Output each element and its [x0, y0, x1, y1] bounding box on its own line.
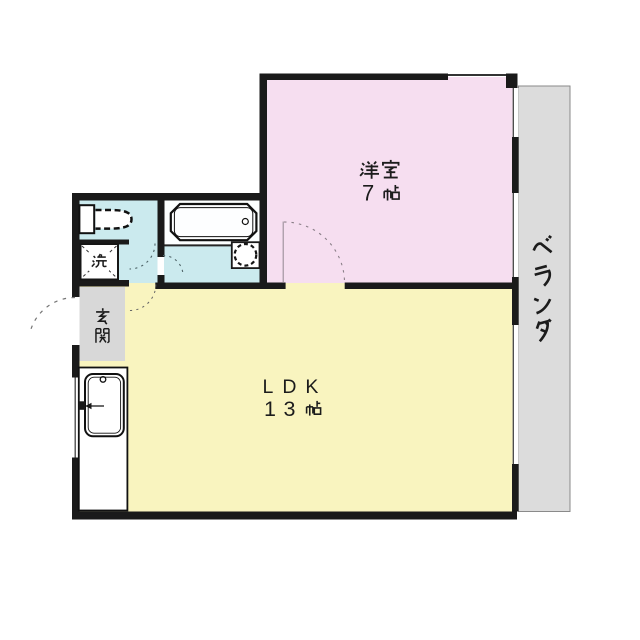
- svg-text:7: 7: [362, 181, 374, 206]
- svg-text:13: 13: [264, 397, 303, 421]
- svg-text:LDK: LDK: [263, 376, 328, 398]
